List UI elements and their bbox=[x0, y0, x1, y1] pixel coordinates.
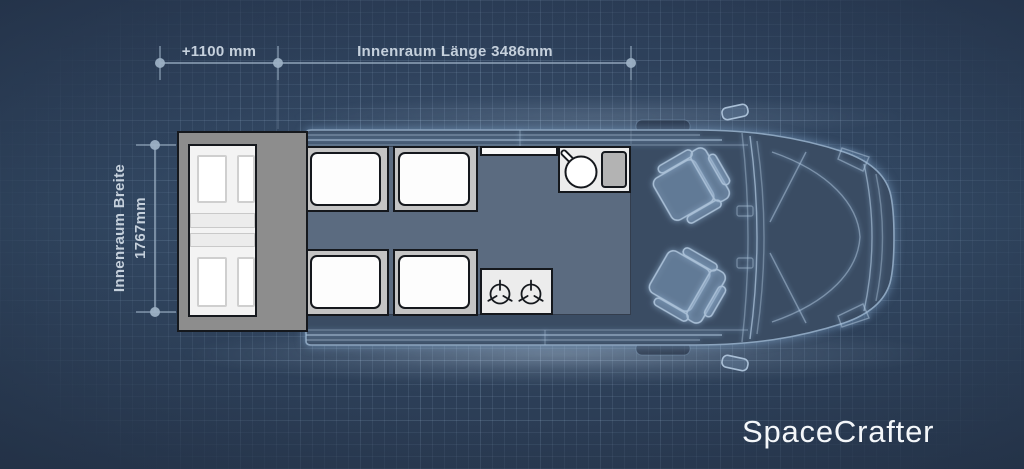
bed-cushion bbox=[237, 257, 255, 307]
bed-fold-strip bbox=[190, 233, 255, 247]
bed-cushion bbox=[237, 155, 255, 203]
blueprint-canvas: +1100 mm Innenraum Länge 3486mm Innenrau… bbox=[0, 0, 1024, 469]
width-label-line2: 1767mm bbox=[130, 143, 151, 313]
interior-length-label: Innenraum Länge 3486mm bbox=[300, 42, 610, 62]
width-label-line1: Innenraum Breite bbox=[109, 143, 130, 313]
extension-dimension-label: +1100 mm bbox=[158, 42, 280, 62]
brand-logo: SpaceCrafter bbox=[742, 414, 972, 450]
bench-cushion bbox=[310, 152, 381, 206]
bench-cushion bbox=[310, 255, 381, 309]
stove-unit bbox=[480, 268, 553, 315]
bed-cushion bbox=[197, 155, 227, 203]
drainboard bbox=[602, 152, 626, 187]
bench-cushion bbox=[398, 255, 470, 309]
bench-cushion bbox=[398, 152, 470, 206]
sink-icon bbox=[566, 157, 597, 188]
interior-width-label: Innenraum Breite 1767mm bbox=[109, 143, 153, 313]
bed-fold-strip bbox=[190, 213, 255, 228]
kitchen-sink-unit bbox=[558, 146, 631, 193]
counter-strip bbox=[480, 146, 558, 156]
bed-cushion bbox=[197, 257, 227, 307]
stove-burner-icon bbox=[519, 281, 542, 304]
stove-burner-icon bbox=[488, 281, 511, 304]
